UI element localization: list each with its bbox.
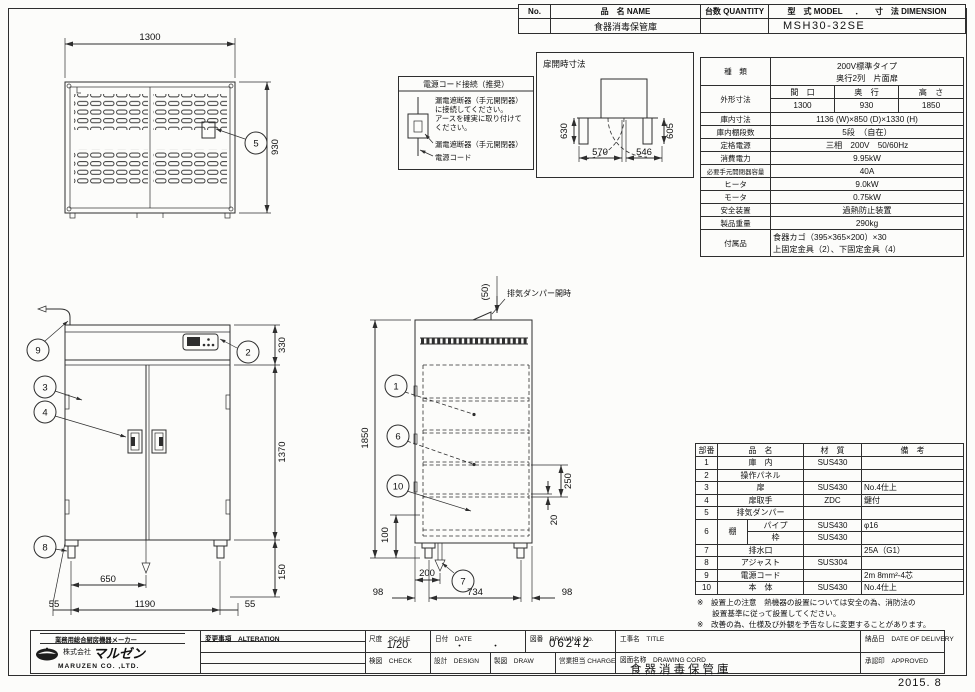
damper-flap xyxy=(473,312,491,320)
part-material xyxy=(804,507,862,520)
parts-row-3: 3 扉 SUS430 No.4仕上 xyxy=(696,482,964,495)
part-material xyxy=(804,544,862,557)
design-label: 設計 DESIGN xyxy=(434,655,479,665)
door-dim-bottom-left: 570 xyxy=(592,147,608,158)
part-material: SUS430 xyxy=(804,457,862,470)
spec-kind-line2: 奥行2列 片面扉 xyxy=(773,72,961,84)
callout-6: 6 xyxy=(395,432,400,443)
part-material: SUS430 xyxy=(804,482,862,495)
door-dim-left: 630 xyxy=(559,123,570,139)
header-no-value xyxy=(519,19,551,34)
plan-dim-depth: 930 xyxy=(270,139,281,155)
header-no-label: No. xyxy=(519,5,551,19)
front-dim-1190: 1190 xyxy=(135,599,155,610)
spec-heater-value: 9.0kW xyxy=(771,178,964,191)
header-qty-label: 台数 QUANTITY xyxy=(701,5,769,19)
parts-h-note: 備 考 xyxy=(862,444,964,457)
part-name: 電源コード xyxy=(718,569,804,582)
part-note: 2m 8mm²-4芯 xyxy=(862,569,964,582)
part-name: 扉 xyxy=(718,482,804,495)
spec-outer-w-label: 間 口 xyxy=(771,86,835,99)
spec-motor-label: モータ xyxy=(701,191,771,204)
installation-notes: ※ 設置上の注意 熱機器の設置については安全の為、消防法の 設置基準に従って設置… xyxy=(697,597,963,630)
door-dim-right: 605 xyxy=(665,123,676,139)
parts-row-5: 5 排気ダンパー xyxy=(696,507,964,520)
spec-safety-value: 過熱防止装置 xyxy=(771,204,964,217)
cord-label: 電源コード xyxy=(435,153,471,162)
side-dim-98-front: 98 xyxy=(373,587,384,598)
part-note xyxy=(862,457,964,470)
callout-4: 4 xyxy=(42,408,47,419)
check-label: 検図 CHECK xyxy=(369,655,412,665)
side-dim-100: 100 xyxy=(380,527,391,543)
alteration-label: 変更事項 ALTERATION xyxy=(205,633,279,643)
spec-shelves-label: 庫内棚段数 xyxy=(701,126,771,139)
spec-outer-label: 外形寸法 xyxy=(701,86,771,113)
breaker-label: 漏電遮断器（手元開閉器） xyxy=(435,140,523,149)
part-material xyxy=(804,569,862,582)
spec-table: 種 類 200V標準タイプ 奥行2列 片面扉 外形寸法 間 口 奥 行 高 さ … xyxy=(700,57,964,257)
power-box-line2: に接続してください。 xyxy=(435,105,508,114)
header-table: No. 品 名 NAME 台数 QUANTITY 型 式 MODEL ． 寸 法… xyxy=(518,4,966,34)
callout-1: 1 xyxy=(393,382,398,393)
power-box-line3: アースを確実に取り付けて xyxy=(435,114,522,123)
company-name: マルゼン xyxy=(93,643,145,662)
louver-band-top-left xyxy=(74,94,148,130)
dot-separator: ． xyxy=(845,7,873,16)
part-material: ZDC xyxy=(804,494,862,507)
part-no: 6 xyxy=(696,519,718,544)
project-title-label: 工事名 TITLE xyxy=(620,633,664,643)
spec-inner-label: 庫内寸法 xyxy=(701,113,771,126)
header-model-value: MSH30-32SE xyxy=(769,19,966,34)
spec-outer-d: 930 xyxy=(835,99,899,113)
part-name: 操作パネル xyxy=(718,469,804,482)
header-model-dim-label: 型 式 MODEL ． 寸 法 DIMENSION xyxy=(769,5,966,19)
title-block: 業務用総合厨房機器メーカー 株式会社 マルゼン MARUZEN CO. ,LTD… xyxy=(30,630,945,674)
header-name-value: 食器消毒保管庫 xyxy=(551,19,701,34)
door-dim-bottom-right: 546 xyxy=(636,147,652,158)
charge-label: 営業担当 CHARGE xyxy=(559,655,615,665)
parts-row-9: 9 電源コード 2m 8mm²-4芯 xyxy=(696,569,964,582)
callout-5: 5 xyxy=(253,139,258,150)
spec-kind-line1: 200V標準タイプ xyxy=(773,60,961,72)
spec-weight-label: 製品重量 xyxy=(701,217,771,230)
front-dim-330: 330 xyxy=(277,337,288,353)
part-note: φ16 xyxy=(862,519,964,532)
front-dim-150: 150 xyxy=(277,564,288,580)
callout-7: 7 xyxy=(460,577,465,588)
maker-logo-cell: 業務用総合厨房機器メーカー 株式会社 マルゼン MARUZEN CO. ,LTD… xyxy=(30,630,200,674)
front-dim-55-right: 55 xyxy=(245,599,256,610)
part-material: SUS430 xyxy=(804,519,862,532)
part-no: 8 xyxy=(696,557,718,570)
part-note: No.4仕上 xyxy=(862,582,964,595)
damper-open-label: 排気ダンパー開時 xyxy=(507,288,571,298)
parts-row-2: 2 操作パネル xyxy=(696,469,964,482)
parts-row-10: 10 本 体 SUS430 No.4仕上 xyxy=(696,582,964,595)
spec-accessory-line2: 上固定金具（2）、下固定金具（4） xyxy=(773,243,961,255)
parts-row-1: 1 庫 内 SUS430 xyxy=(696,457,964,470)
model-label: 型 式 MODEL xyxy=(788,7,843,16)
part-material: SUS304 xyxy=(804,557,862,570)
louver-band-bottom-right xyxy=(153,149,227,185)
header-name-label: 品 名 NAME xyxy=(551,5,701,19)
spec-breaker-label: 必要手元開閉器容量 xyxy=(701,165,771,178)
maruzen-logo-icon xyxy=(34,646,60,661)
parts-h-material: 材 質 xyxy=(804,444,862,457)
spec-power-label: 定格電源 xyxy=(701,139,771,152)
company-en: MARUZEN CO. ,LTD. xyxy=(58,663,139,670)
power-cord-box: 電源コード接続（推奨） 漏電遮断器（手元開閉器） に接続してください。 アースを… xyxy=(398,76,534,170)
side-dim-250: 250 xyxy=(563,473,574,489)
part-name: 排水口 xyxy=(718,544,804,557)
company-prefix: 株式会社 xyxy=(63,647,91,657)
scale-value: 1/20 xyxy=(365,639,430,651)
drawing-name-value: 食器消毒保管庫 xyxy=(630,661,732,677)
part-note: No.4仕上 xyxy=(862,482,964,495)
part-sub-name: パイプ xyxy=(748,519,804,532)
side-dim-50: (50) xyxy=(480,284,491,301)
plan-dim-width: 1300 xyxy=(139,32,160,43)
header-qty-value xyxy=(701,19,769,34)
note-2: ※ 改善の為、仕様及び外観を予告なしに変更することがあります。 xyxy=(697,619,963,630)
part-no: 1 xyxy=(696,457,718,470)
date-value: ・ ・ xyxy=(430,639,525,652)
side-dim-200: 200 xyxy=(419,568,435,579)
issue-date: 2015. 8 xyxy=(898,677,942,689)
plan-view: 1300 5 930 xyxy=(25,22,325,257)
part-no: 9 xyxy=(696,569,718,582)
spec-motor-value: 0.75kW xyxy=(771,191,964,204)
spec-heater-label: ヒータ xyxy=(701,178,771,191)
part-sub-name: 枠 xyxy=(748,532,804,545)
parts-h-name: 品 名 xyxy=(718,444,804,457)
parts-h-no: 部番 xyxy=(696,444,718,457)
spec-weight-value: 290kg xyxy=(771,217,964,230)
part-name: 庫 内 xyxy=(718,457,804,470)
part-no: 7 xyxy=(696,544,718,557)
callout-3: 3 xyxy=(42,383,47,394)
part-name: 排気ダンパー xyxy=(718,507,804,520)
side-dim-20: 20 xyxy=(549,515,560,526)
callout-10: 10 xyxy=(393,482,404,493)
spec-kind-value: 200V標準タイプ 奥行2列 片面扉 xyxy=(771,58,964,86)
front-dim-650: 650 xyxy=(100,574,116,585)
parts-row-6a: 6 棚 パイプ SUS430 φ16 xyxy=(696,519,964,532)
side-view: (50) 排気ダンパー開時 1 6 10 7 1850 xyxy=(330,268,630,618)
front-dim-1370: 1370 xyxy=(277,441,288,462)
panel-display xyxy=(187,337,200,346)
part-name: 本 体 xyxy=(718,582,804,595)
part-no: 2 xyxy=(696,469,718,482)
power-box-line4: ください。 xyxy=(435,123,471,132)
drawing-no-value: 06242 xyxy=(525,638,615,650)
note-1-line-1: ※ 設置上の注意 熱機器の設置については安全の為、消防法の xyxy=(697,597,963,608)
part-note xyxy=(862,507,964,520)
drawing-sheet: No. 品 名 NAME 台数 QUANTITY 型 式 MODEL ． 寸 法… xyxy=(0,0,975,692)
callout-8: 8 xyxy=(42,543,47,554)
door-open-title: 扉開時寸法 xyxy=(543,59,586,69)
parts-table: 部番 品 名 材 質 備 考 1 庫 内 SUS430 2 操作パネル 3 扉 … xyxy=(695,443,964,595)
spec-power-value: 三相 200V 50/60Hz xyxy=(771,139,964,152)
parts-row-4: 4 扉取手 ZDC 鍵付 xyxy=(696,494,964,507)
spec-outer-w: 1300 xyxy=(771,99,835,113)
side-dim-1850: 1850 xyxy=(360,427,371,448)
callout-2: 2 xyxy=(245,348,250,359)
spec-accessory-value: 食器カゴ（395×365×200）×30 上固定金具（2）、下固定金具（4） xyxy=(771,230,964,257)
parts-row-8: 8 アジャスト SUS304 xyxy=(696,557,964,570)
part-no: 10 xyxy=(696,582,718,595)
side-dim-734: 734 xyxy=(467,587,483,598)
part-no: 3 xyxy=(696,482,718,495)
door-open-view: 扉開時寸法 630 605 570 546 xyxy=(536,52,694,178)
part-note xyxy=(862,532,964,545)
spec-shelves-value: 5段 （自在） xyxy=(771,126,964,139)
part-name: 棚 xyxy=(718,519,748,544)
part-name: アジャスト xyxy=(718,557,804,570)
part-no: 4 xyxy=(696,494,718,507)
delivery-label: 納品日 DATE OF DELIVERY xyxy=(865,633,954,643)
front-dim-55-left: 55 xyxy=(49,599,60,610)
part-material: SUS430 xyxy=(804,532,862,545)
spec-safety-label: 安全装置 xyxy=(701,204,771,217)
part-material: SUS430 xyxy=(804,582,862,595)
part-material xyxy=(804,469,862,482)
part-note: 25A（G1） xyxy=(862,544,964,557)
spec-inner-value: 1136 (W)×850 (D)×1330 (H) xyxy=(771,113,964,126)
front-view: 9 2 3 4 8 330 1370 150 650 1190 55 55 xyxy=(12,285,312,630)
spec-outer-h: 1850 xyxy=(899,99,964,113)
spec-accessory-line1: 食器カゴ（395×365×200）×30 xyxy=(773,231,961,243)
spec-consumption-value: 9.95kW xyxy=(771,152,964,165)
note-1-line-2: 設置基準に従って設置してください。 xyxy=(697,608,963,619)
part-no: 5 xyxy=(696,507,718,520)
part-note xyxy=(862,557,964,570)
spec-outer-h-label: 高 さ xyxy=(899,86,964,99)
part-note xyxy=(862,469,964,482)
spec-accessory-label: 付属品 xyxy=(701,230,771,257)
spec-outer-d-label: 奥 行 xyxy=(835,86,899,99)
part-note: 鍵付 xyxy=(862,494,964,507)
part-name: 扉取手 xyxy=(718,494,804,507)
louver-band-bottom-left xyxy=(74,149,148,185)
power-box-line1: 漏電遮断器（手元開閉器） xyxy=(435,96,523,105)
approved-label: 承認印 APPROVED xyxy=(865,655,928,665)
spec-breaker-value: 40A xyxy=(771,165,964,178)
louver-band-top-right xyxy=(153,94,227,130)
draw-label: 製図 DRAW xyxy=(494,655,534,665)
spec-consumption-label: 消費電力 xyxy=(701,152,771,165)
power-box-title: 電源コード接続（推奨） xyxy=(423,79,509,89)
spec-kind-label: 種 類 xyxy=(701,58,771,86)
parts-row-7: 7 排水口 25A（G1） xyxy=(696,544,964,557)
callout-9: 9 xyxy=(35,346,40,357)
side-dim-98-rear: 98 xyxy=(562,587,573,598)
dimension-label: 寸 法 DIMENSION xyxy=(875,7,947,16)
